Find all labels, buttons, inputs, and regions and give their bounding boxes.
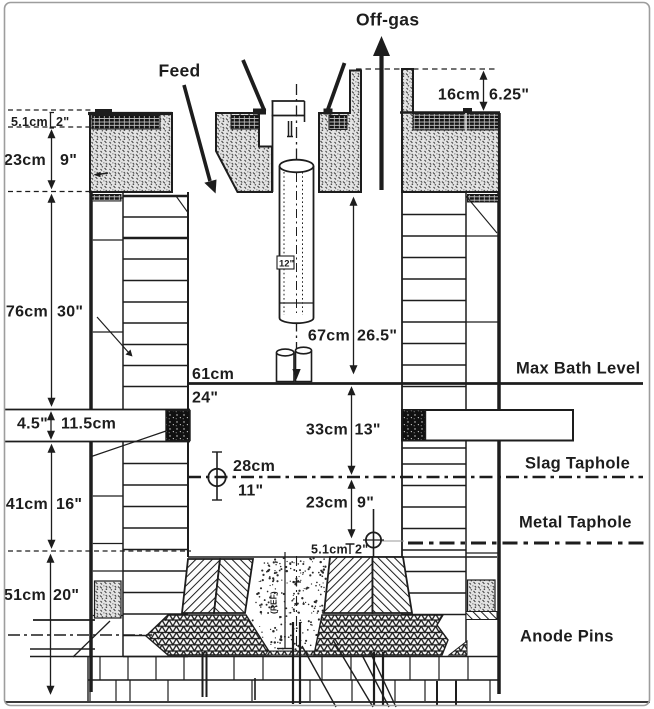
- svg-text:13": 13": [355, 422, 381, 439]
- svg-text:26.5": 26.5": [357, 328, 397, 345]
- svg-text:16cm: 16cm: [438, 87, 480, 104]
- svg-text:Anode Pins: Anode Pins: [520, 628, 614, 646]
- svg-text:12": 12": [279, 259, 294, 270]
- svg-text:2": 2": [56, 115, 69, 129]
- svg-text:2": 2": [355, 543, 368, 557]
- svg-text:6.25": 6.25": [489, 87, 529, 104]
- svg-text:5.1cm: 5.1cm: [11, 115, 48, 129]
- svg-text:(REF): (REF): [269, 591, 279, 614]
- svg-text:16": 16": [56, 496, 82, 513]
- svg-text:Max Bath Level: Max Bath Level: [516, 360, 640, 378]
- svg-text:Slag Taphole: Slag Taphole: [525, 455, 630, 473]
- svg-text:9": 9": [357, 495, 374, 512]
- svg-text:5.1cm: 5.1cm: [311, 543, 348, 557]
- svg-text:23cm: 23cm: [306, 495, 348, 512]
- svg-text:9": 9": [60, 152, 77, 169]
- svg-text:20": 20": [53, 587, 79, 604]
- svg-text:Feed: Feed: [159, 61, 201, 81]
- svg-text:41cm: 41cm: [6, 496, 48, 513]
- svg-text:24": 24": [192, 390, 218, 407]
- svg-text:4.5": 4.5": [17, 416, 48, 433]
- svg-text:Metal Taphole: Metal Taphole: [519, 514, 632, 532]
- svg-text:11": 11": [238, 483, 263, 500]
- svg-text:67cm: 67cm: [308, 328, 350, 345]
- svg-text:76cm: 76cm: [6, 304, 48, 321]
- svg-text:30": 30": [57, 304, 83, 321]
- svg-text:33cm: 33cm: [306, 422, 348, 439]
- svg-text:61cm: 61cm: [192, 366, 234, 383]
- svg-text:11.5cm: 11.5cm: [61, 416, 116, 433]
- svg-text:Off-gas: Off-gas: [356, 10, 419, 30]
- svg-text:23cm: 23cm: [4, 152, 46, 169]
- svg-text:51cm: 51cm: [4, 587, 46, 604]
- svg-text:28cm: 28cm: [233, 458, 275, 475]
